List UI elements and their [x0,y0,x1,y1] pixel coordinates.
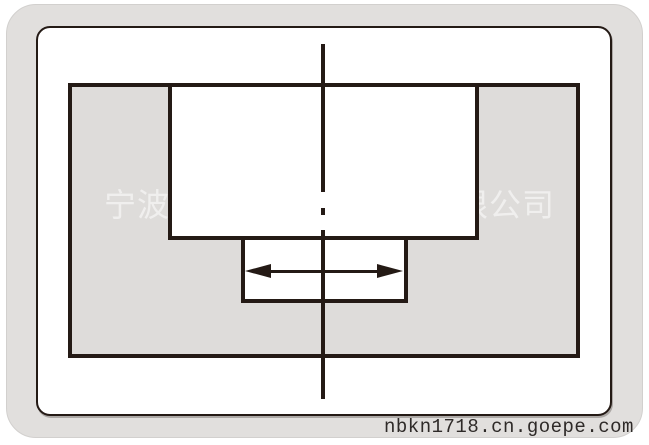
footer-url: nbkn1718.cn.goepe.com [384,417,634,438]
centerline-dot [321,208,325,215]
arrow-shaft [257,270,391,273]
centerline-lower-segment [321,230,325,399]
watermark-left: 宁波 [104,189,170,221]
arrowhead-right-icon [377,264,403,278]
horizontal-double-arrow [245,264,403,278]
centerline-upper-segment [321,44,325,192]
diagram-canvas: 宁波 限公司 nbkn1718.cn.goepe.com [0,0,649,445]
